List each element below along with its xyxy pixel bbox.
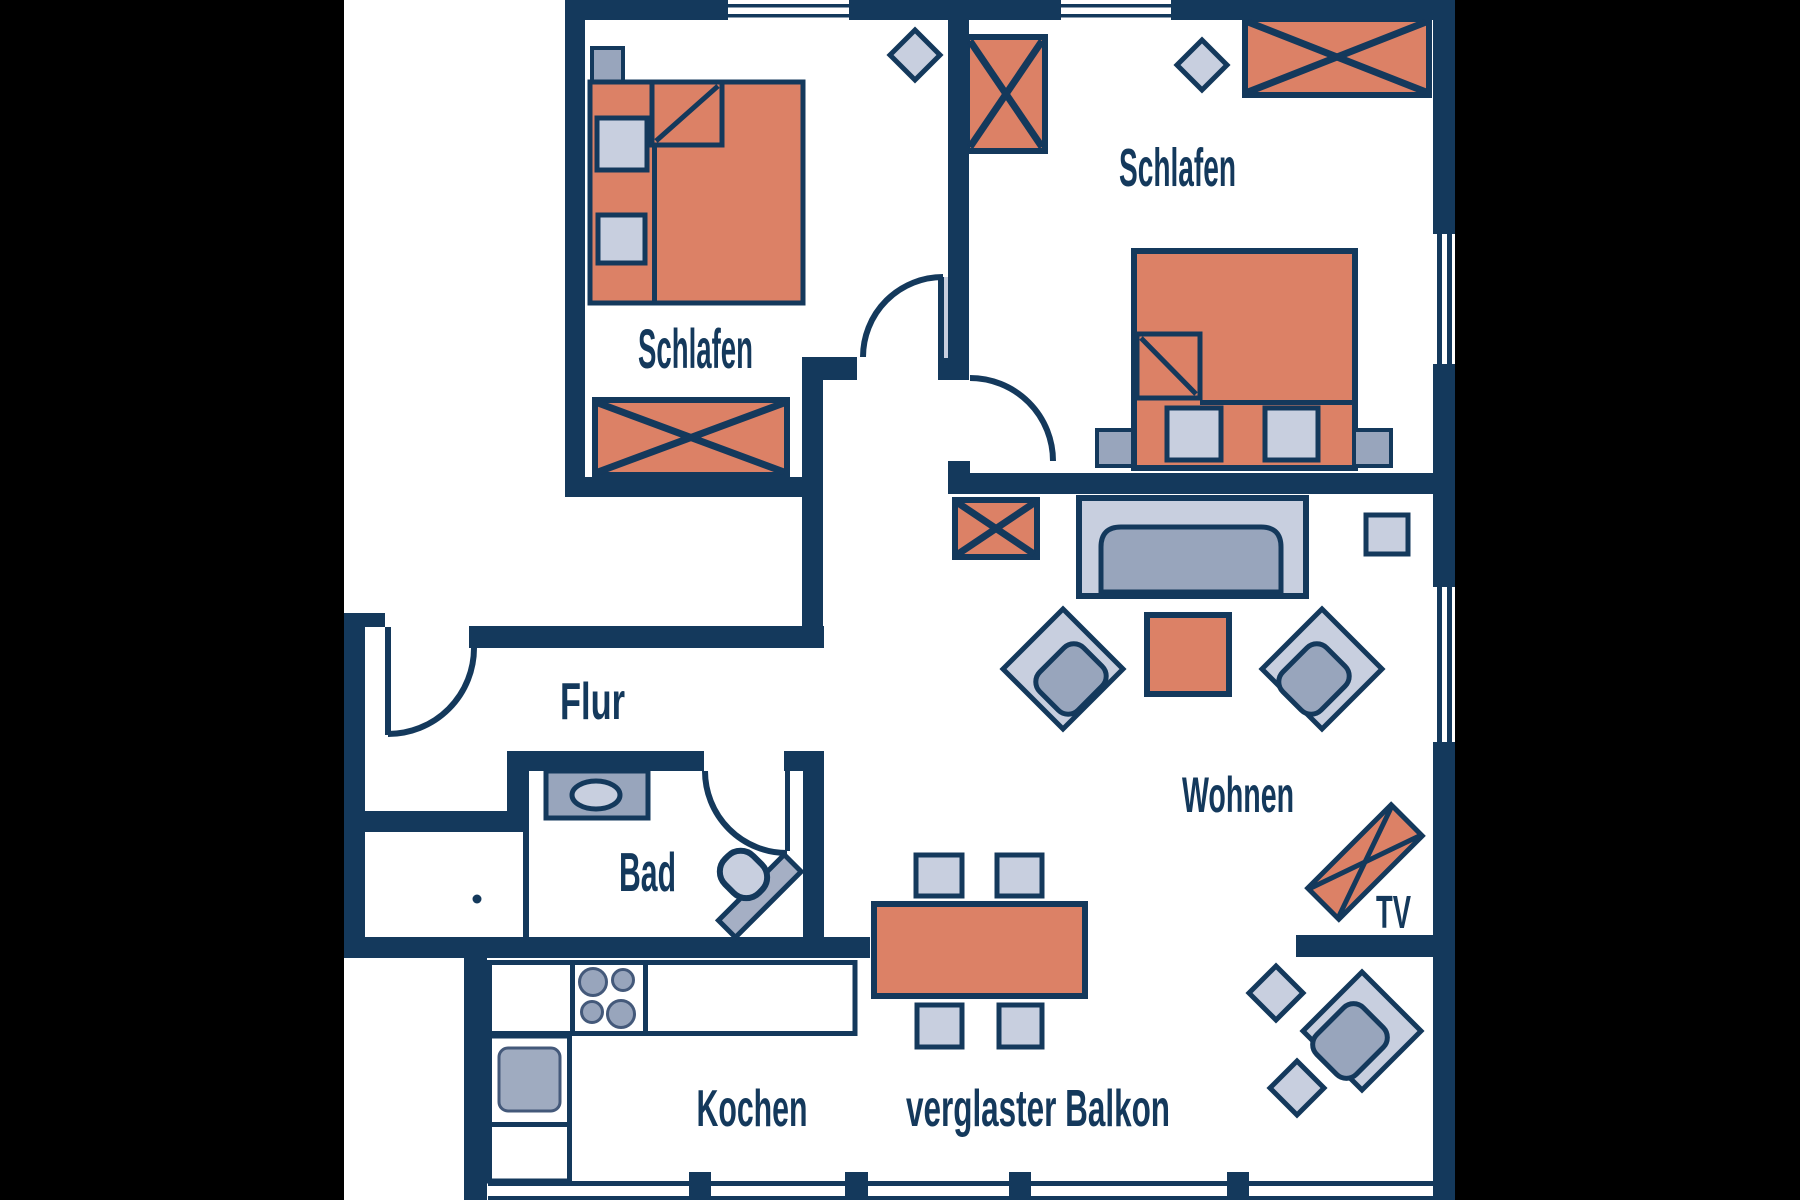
svg-text:Kochen: Kochen <box>697 1080 808 1138</box>
svg-text:verglaster Balkon: verglaster Balkon <box>906 1080 1170 1138</box>
svg-text:Wohnen: Wohnen <box>1182 767 1294 823</box>
svg-text:Flur: Flur <box>560 673 625 731</box>
svg-text:TV: TV <box>1376 886 1411 938</box>
svg-text:Schlafen: Schlafen <box>1119 138 1236 198</box>
svg-text:Schlafen: Schlafen <box>638 317 753 380</box>
svg-text:Bad: Bad <box>619 841 676 903</box>
